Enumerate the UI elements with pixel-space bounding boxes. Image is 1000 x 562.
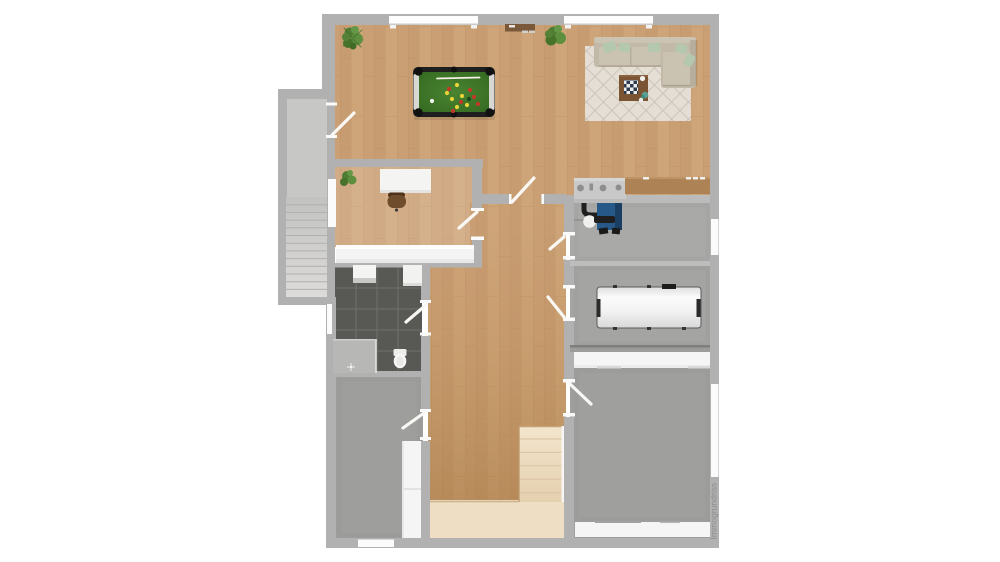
svg-text:Immogrundriss: Immogrundriss — [709, 483, 719, 540]
